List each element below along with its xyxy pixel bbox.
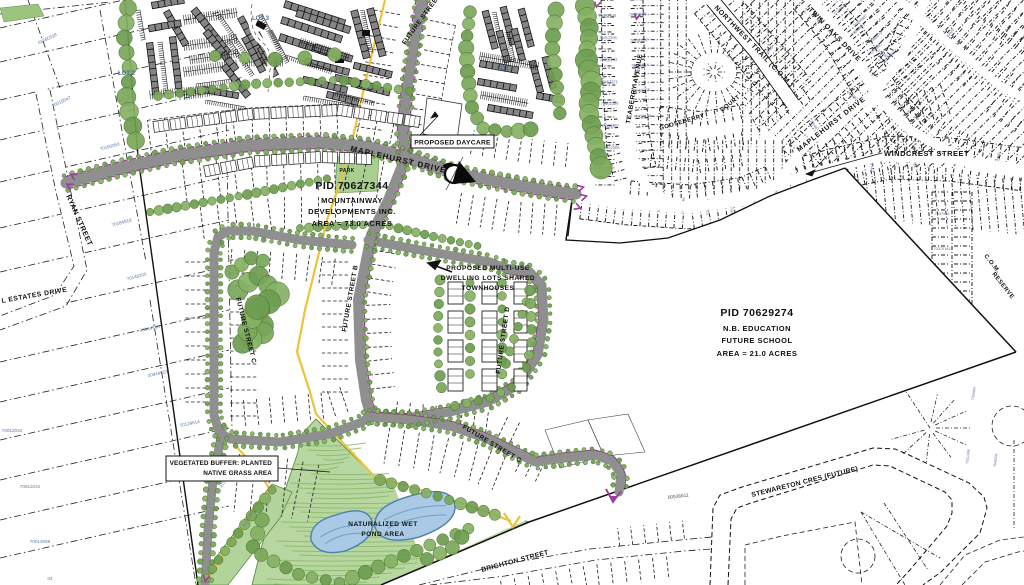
svg-text:PROPOSED MULTI-USE: PROPOSED MULTI-USE	[446, 265, 530, 272]
svg-text:70012059: 70012059	[30, 539, 51, 544]
svg-text:70452271: 70452271	[600, 79, 619, 84]
svg-text:04: 04	[47, 576, 53, 581]
svg-text:70012034: 70012034	[2, 428, 23, 433]
svg-text:FUTURE SCHOOL: FUTURE SCHOOL	[721, 336, 792, 345]
svg-text:PARK: PARK	[340, 168, 355, 174]
svg-text:70452222: 70452222	[630, 37, 649, 43]
svg-text:70452198: 70452198	[633, 113, 652, 119]
svg-text:WINDCREST STREET: WINDCREST STREET	[884, 149, 969, 158]
svg-text:AREA = 21.0 ACRES: AREA = 21.0 ACRES	[717, 349, 798, 358]
svg-text:NATURALIZED WET: NATURALIZED WET	[348, 521, 417, 528]
svg-text:DEVELOPMENTS INC.: DEVELOPMENTS INC.	[308, 207, 396, 216]
svg-text:NATIVE GRASS AREA: NATIVE GRASS AREA	[203, 470, 272, 477]
svg-text:MOUNTAINWAY: MOUNTAINWAY	[321, 196, 383, 205]
svg-text:LOT 2: LOT 2	[118, 71, 136, 77]
svg-text:POND AREA: POND AREA	[361, 531, 404, 538]
svg-text:70452248: 70452248	[598, 13, 617, 18]
svg-text:PID 70627344: PID 70627344	[315, 180, 388, 192]
svg-text:TOWNHOUSES: TOWNHOUSES	[462, 285, 515, 292]
svg-text:AREA = 73.0 ACRES: AREA = 73.0 ACRES	[312, 219, 393, 228]
svg-text:PROPOSED DAYCARE: PROPOSED DAYCARE	[414, 140, 491, 147]
svg-text:70452263: 70452263	[599, 57, 618, 62]
svg-text:DWELLING LOTS SHARED: DWELLING LOTS SHARED	[441, 275, 535, 282]
svg-text:70452289: 70452289	[601, 101, 620, 106]
svg-text:70012042: 70012042	[20, 484, 41, 489]
svg-text:70452297: 70452297	[601, 123, 620, 128]
svg-text:VEGETATED BUFFER: PLANTED: VEGETATED BUFFER: PLANTED	[170, 460, 273, 467]
svg-text:PID 70629274: PID 70629274	[720, 307, 793, 319]
svg-text:LOT 3: LOT 3	[252, 16, 270, 22]
svg-text:70370163: 70370163	[934, 247, 951, 251]
svg-text:N.B. EDUCATION: N.B. EDUCATION	[723, 324, 791, 333]
svg-text:7037036: 7037036	[935, 212, 950, 216]
svg-text:LOT 5: LOT 5	[497, 66, 515, 72]
svg-text:70452295: 70452295	[599, 35, 618, 40]
